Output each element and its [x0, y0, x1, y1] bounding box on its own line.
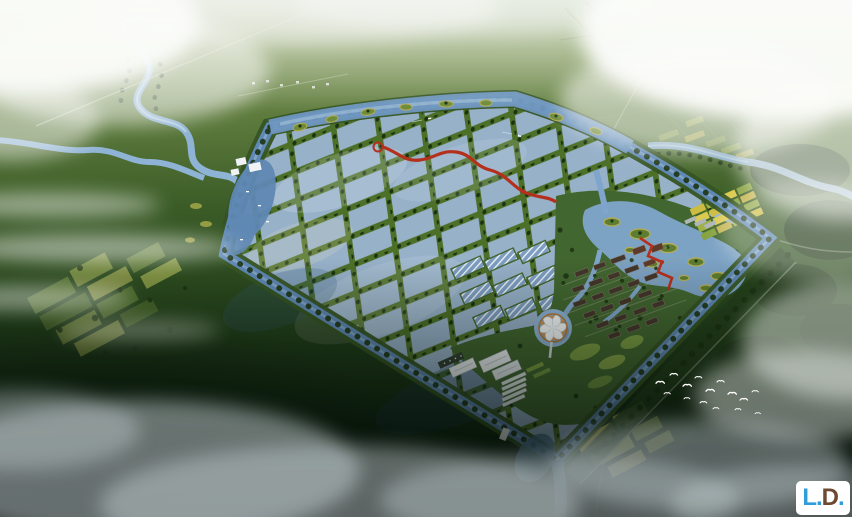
logo-watermark: L.D.	[796, 481, 850, 515]
rendering-canvas	[0, 0, 852, 517]
logo-letter-d: D	[822, 486, 838, 510]
logo-letter-l: L	[802, 486, 816, 510]
aerial-masterplan-rendering: L.D.	[0, 0, 852, 517]
logo-dot-2: .	[838, 486, 844, 510]
